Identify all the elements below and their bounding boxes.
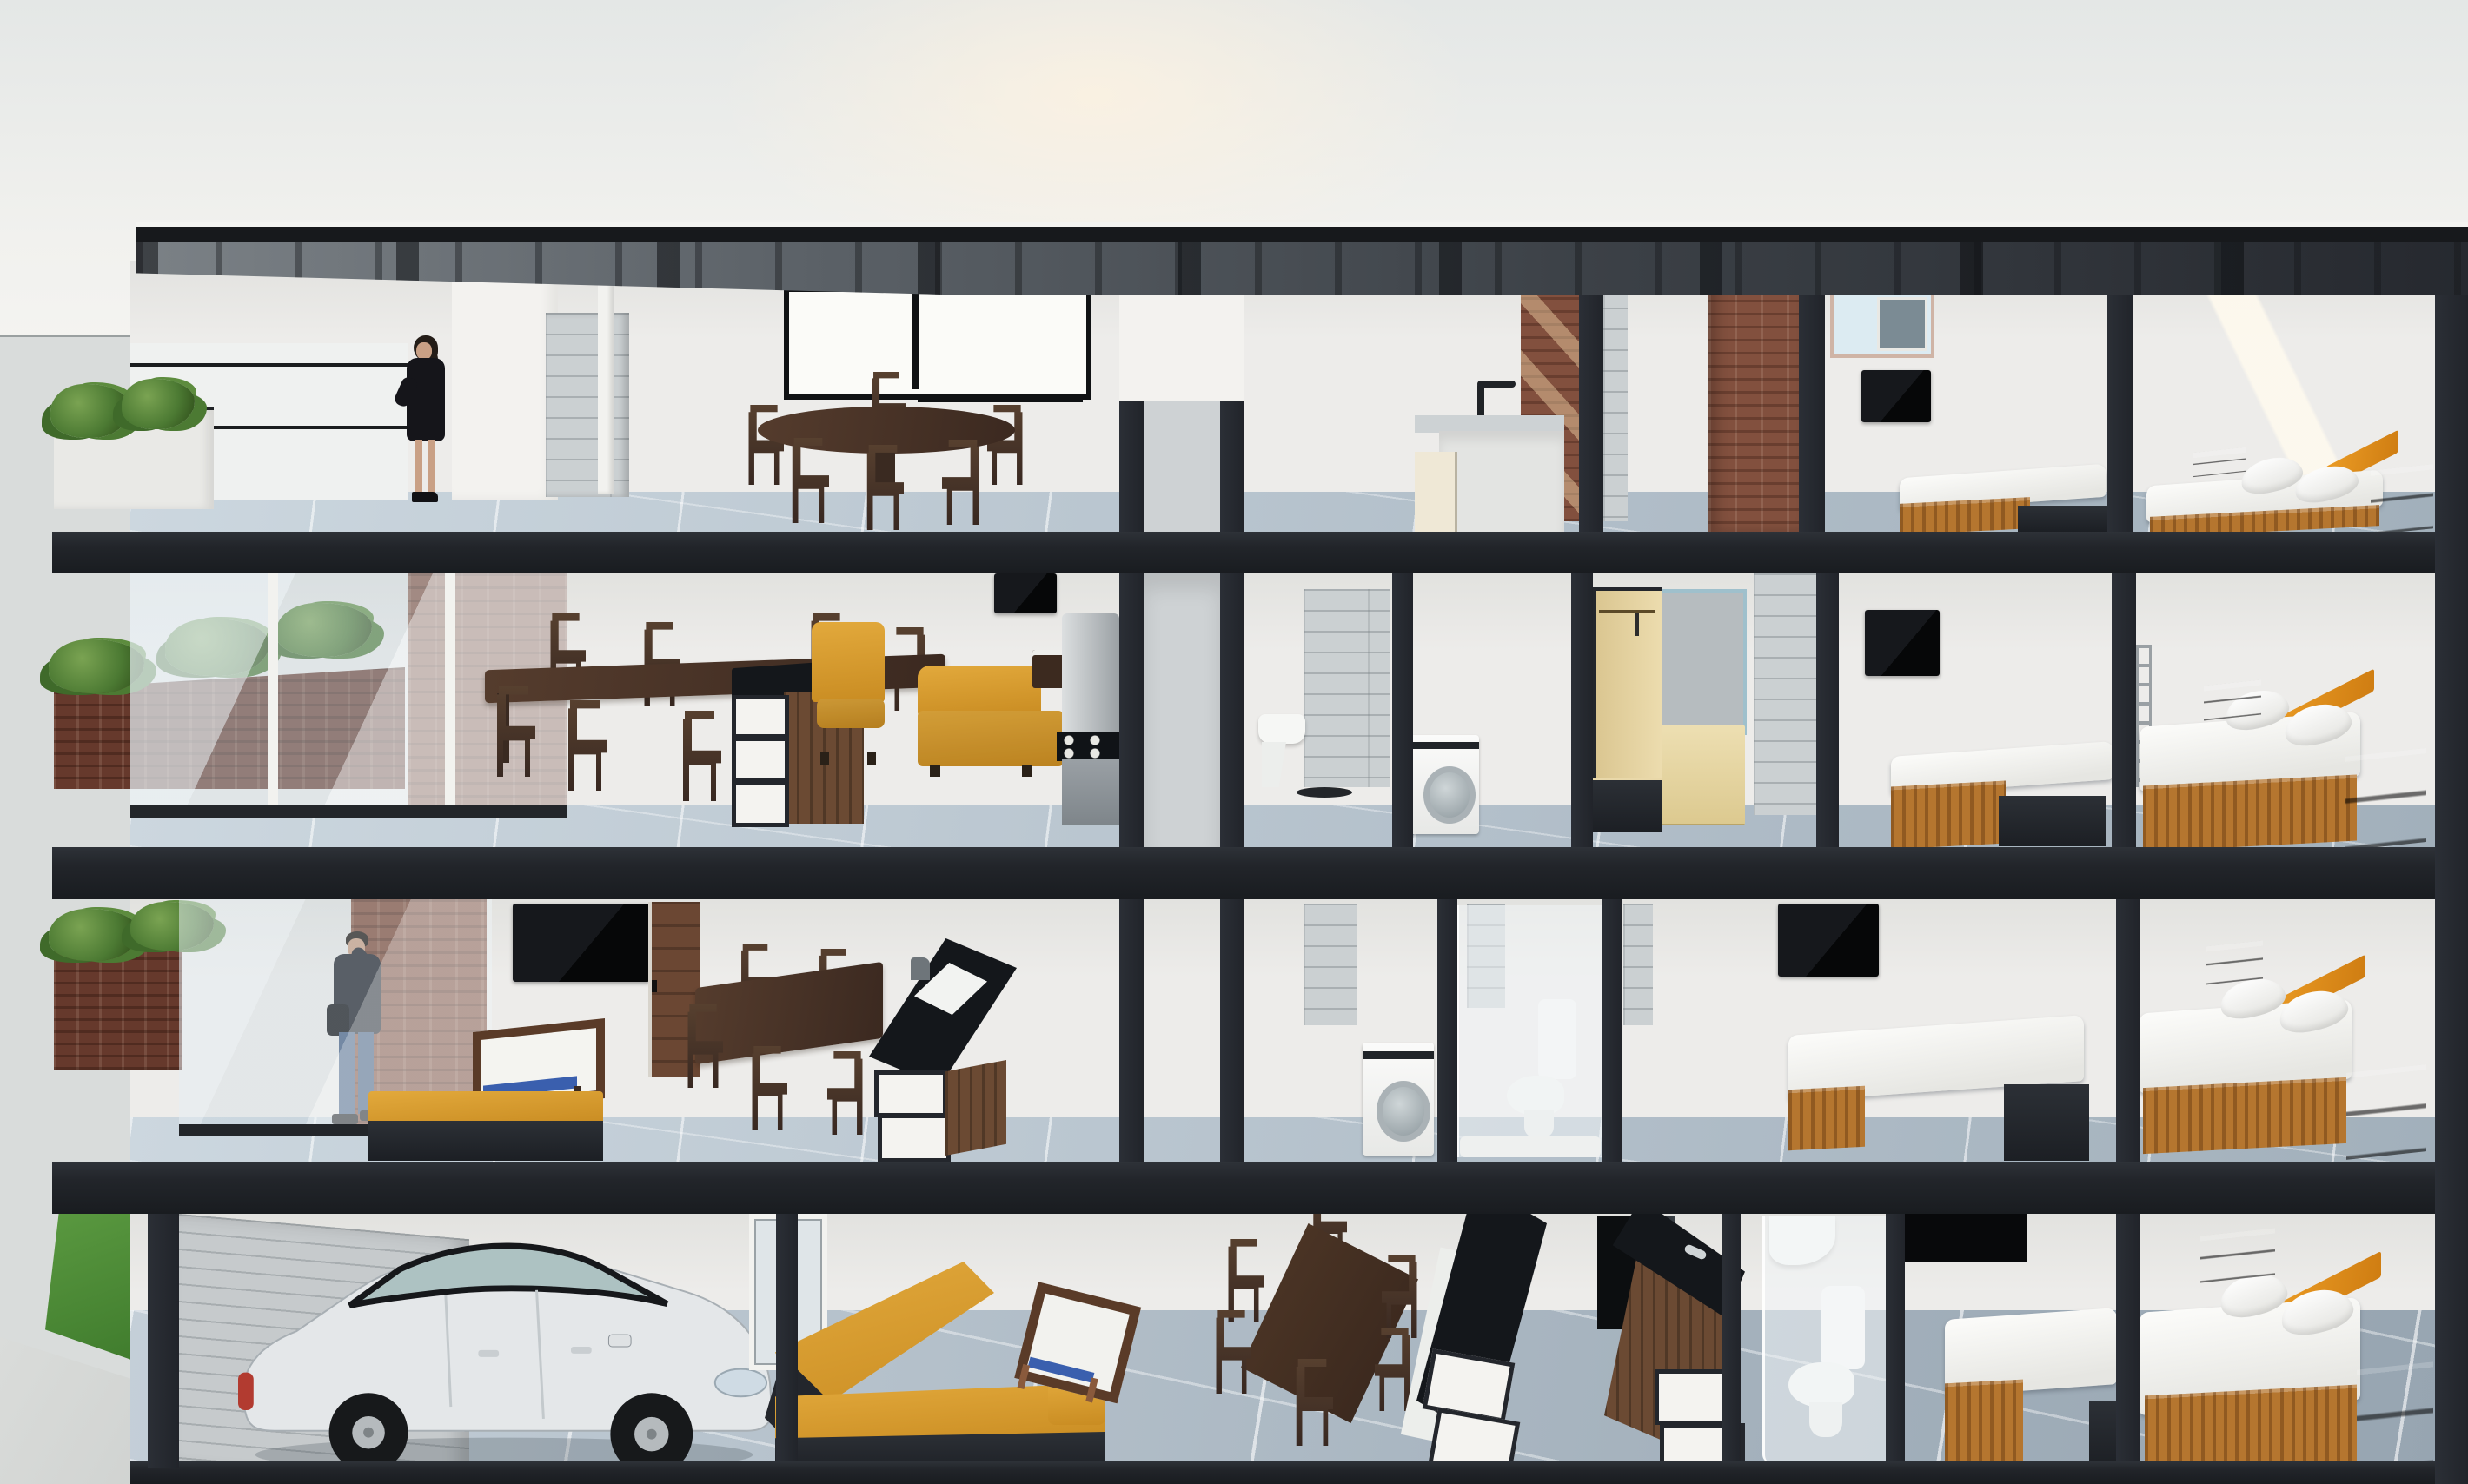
floating-shelf [2200,1228,2275,1282]
sofa-backrest [812,622,885,702]
wall-f4 [2107,261,2133,532]
bed-foot-chest [1999,796,2106,846]
double-bed-base [2143,775,2357,852]
core-shaft [1144,573,1220,847]
wall-f3 [1571,573,1593,847]
wall-f4 [1579,261,1603,532]
closet-tile-wall [1754,573,1816,815]
terrace-wall [452,261,558,500]
dining-chair [1224,1239,1264,1322]
door-handle [652,980,657,992]
bath3-tile-wall [1304,589,1390,787]
sofa-body [918,711,1064,766]
hall-brick-wall [1708,261,1799,532]
island2-faucet [911,957,930,980]
island-shelf [732,695,789,739]
woman-head [416,342,432,360]
island2-wood-face [945,1060,1006,1156]
shower-tray [1460,1136,1601,1157]
sofa-leg [1022,765,1032,777]
wall-g [1886,1214,1905,1461]
bed-foot-chest [2004,1084,2089,1161]
yellow-bench-seat [368,1091,603,1124]
single-bed-base [1891,781,2006,850]
island2-shelf [874,1070,947,1117]
bed1m-base [1945,1380,2023,1469]
kitchen-faucet-arm [1477,381,1516,388]
bath3-mat [1297,787,1352,798]
core-wall [1119,899,1144,1162]
washing-machine-2 [1363,1043,1434,1156]
woman-shoes [412,492,438,502]
nightstand [2357,1361,2433,1472]
core-wall [1220,573,1244,847]
closet-window [1653,589,1747,735]
bed2m-base [1788,1086,1865,1151]
sofa-back-view [812,622,885,770]
dining-set-2 [678,938,895,1130]
bedroom4-tv [1861,370,1931,422]
double-bed-base [2143,1077,2346,1154]
bath2-tile [1304,904,1357,1025]
core-wall [1220,401,1244,532]
double-bed-base [2145,1385,2357,1474]
nightstand [2346,1064,2426,1160]
bedroom2-tv [1778,904,1879,977]
wardrobe-drawers [1590,778,1662,832]
sofa-leg [820,752,829,765]
glass-mullion [445,573,455,817]
island-shelf [732,780,789,827]
slab-f4 [52,532,2468,573]
core-shaft [1144,401,1220,532]
wall-g [2116,1214,2140,1461]
kitchen-island-2 [869,938,1025,1164]
core-wall [1220,899,1244,1162]
wall-f3 [2112,573,2136,847]
yellow-bench-base [368,1121,603,1161]
core-wall [1119,573,1144,847]
slab-f2 [52,1162,2468,1214]
washer-door [1377,1081,1430,1142]
slab-f3 [52,847,2468,899]
woman-leg [428,440,435,494]
floating-shelf [2204,680,2261,721]
dining-chair [942,440,984,525]
right-party-wall [2435,226,2468,1484]
dining-set-1 [1208,1182,1425,1408]
wall-f2 [1437,899,1457,1162]
kitchen-counter-a [1416,1182,1547,1481]
building-section-render [0,0,2468,1484]
wall-f2 [2116,899,2140,1162]
wall-f4 [1799,261,1825,532]
dining-chair [1211,1310,1251,1394]
sink-counter-body [1439,431,1564,532]
roof-post [598,261,614,494]
dark-transom [1905,1214,2027,1262]
dining-chair [827,1051,867,1135]
sink-cabinet [1415,452,1457,532]
shower-screen [1456,905,1608,1157]
dining-chair [787,438,829,523]
balcony2-planter [54,945,182,1070]
stone-door [546,313,629,497]
wall-f3 [1392,573,1413,847]
wardrobe [1590,587,1662,832]
sofa-leg [867,752,876,765]
washing-machine-3 [1410,735,1479,834]
table-top [1241,1223,1418,1423]
dining-chair [747,1046,787,1130]
sofa-seat [817,699,885,728]
nightstand [2345,748,2426,851]
dining-set-roof [730,365,1025,530]
sink-counter-top [1415,415,1564,433]
wardrobe-rail [1599,610,1655,613]
bed-foot-chest [2018,506,2112,532]
roof-top-light-edge [136,222,2468,227]
woman-dress [407,358,445,441]
wall-f3 [1816,573,1839,847]
woman-leg [415,440,422,494]
dining-chair [678,711,721,801]
wardrobe-hanger [1635,613,1639,636]
bedroom3-tv [1865,610,1940,676]
wall-f2 [1602,899,1622,1162]
bath3-sink [1258,714,1305,744]
island2-shelf [878,1114,951,1163]
floating-shelf [2206,941,2263,985]
living2-tv [513,904,650,982]
stone-strip [1603,287,1628,521]
table-top [695,962,883,1064]
bedroom2-tile [1623,904,1653,1025]
glass-mullion [268,573,278,817]
cooktop-3 [1057,732,1125,761]
wall-g [776,1214,798,1461]
car [219,1213,789,1479]
wall-g [148,1214,179,1468]
island-shelf [732,737,789,782]
closet-dresser [1662,725,1745,825]
woman-figure [393,335,455,507]
washer-top-band [1410,742,1479,749]
nightstand [2371,464,2433,535]
roof-slab-top [136,226,2468,242]
bath1-frosted-glass [1762,1216,1893,1463]
washer-top-band [1363,1051,1434,1059]
wall-g [1722,1214,1741,1461]
sofa-backrest [918,666,1041,716]
interior-window-sash [1877,297,1927,351]
cooktop-cabinet [1062,759,1119,825]
sofa-leg [930,765,940,777]
fridge-3 [1062,613,1119,735]
living3-tv [994,573,1057,613]
washer-door [1423,766,1476,824]
dining-chair [563,700,607,791]
slab-ground [130,1461,2468,1484]
core-wall [1119,401,1144,532]
parapet-rail-line [130,363,408,367]
